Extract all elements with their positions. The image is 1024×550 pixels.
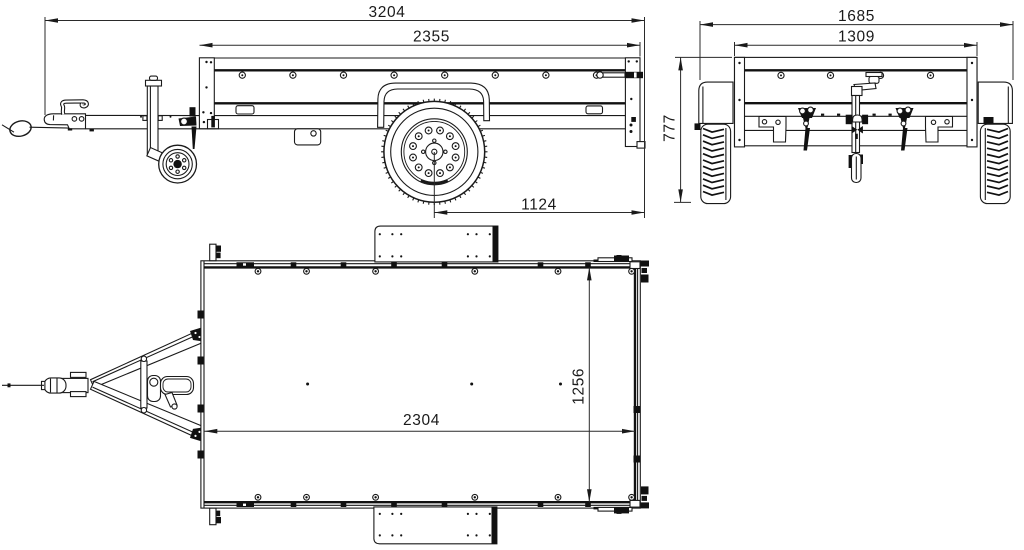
svg-text:2355: 2355: [413, 29, 450, 46]
svg-text:777: 777: [661, 114, 678, 142]
svg-text:1124: 1124: [521, 196, 557, 213]
svg-text:3204: 3204: [369, 4, 406, 21]
svg-text:2304: 2304: [403, 412, 440, 429]
svg-text:1256: 1256: [570, 368, 587, 405]
svg-text:1309: 1309: [838, 29, 875, 46]
svg-text:1685: 1685: [838, 8, 875, 25]
